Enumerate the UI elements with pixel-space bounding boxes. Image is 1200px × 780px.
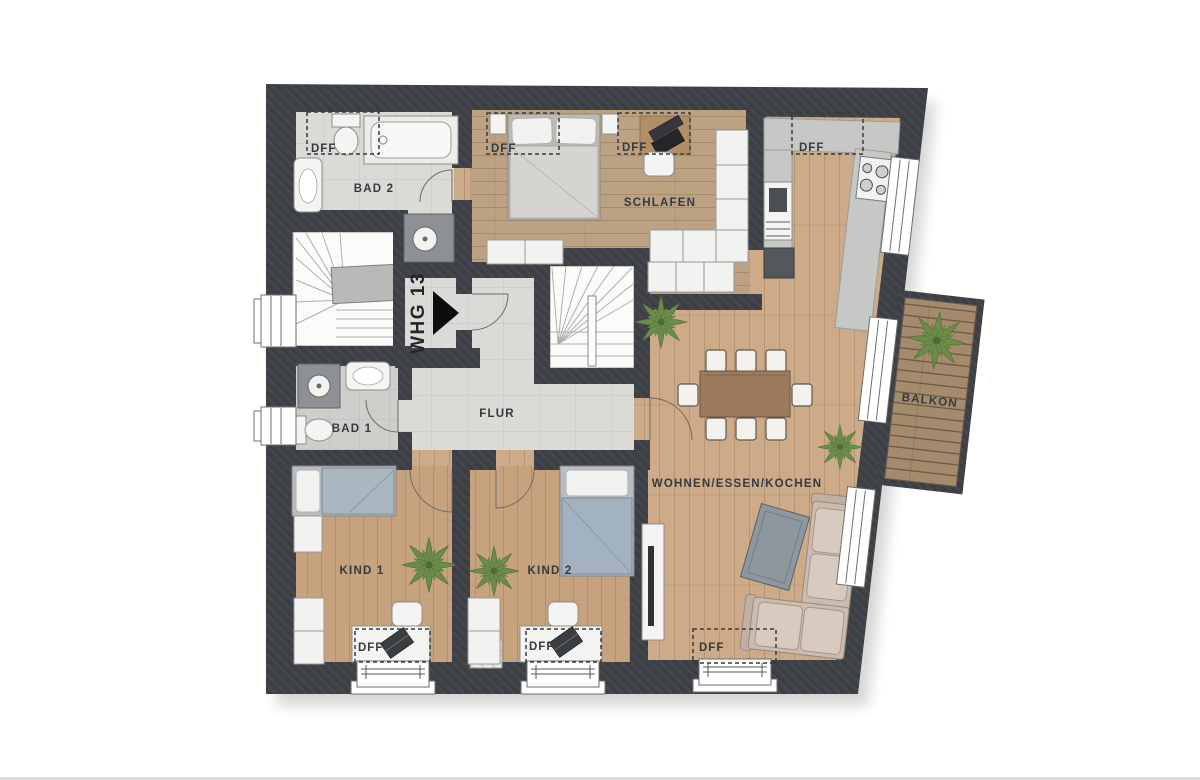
- chair: [678, 384, 698, 406]
- pillow: [556, 117, 597, 144]
- window: [693, 659, 777, 692]
- wardrobe: [468, 598, 500, 664]
- chair: [766, 418, 786, 440]
- pillow: [566, 470, 628, 496]
- room-label-kind1: KIND 1: [340, 565, 385, 577]
- chair: [644, 152, 674, 176]
- plant-icon: [818, 425, 862, 469]
- skylight-label: DFF: [699, 642, 724, 654]
- skylight-label: DFF: [799, 142, 824, 154]
- flur-east-floor: [534, 384, 634, 450]
- wall-segment: [452, 200, 472, 264]
- chair: [736, 350, 756, 372]
- chair: [706, 418, 726, 440]
- floor-plan-canvas: BALKON: [0, 0, 1200, 780]
- building-staircase: [293, 232, 398, 346]
- chair: [706, 350, 726, 372]
- chair: [736, 418, 756, 440]
- wall-segment: [534, 368, 650, 384]
- wall-segment: [398, 366, 412, 400]
- skylight-label: DFF: [311, 143, 336, 155]
- window: [254, 407, 296, 445]
- apartment-stairs: [550, 252, 634, 368]
- blanket: [322, 468, 394, 514]
- wall-segment: [288, 210, 408, 232]
- room-label-wohnen: WOHNEN/ESSEN/KOCHEN: [652, 478, 822, 490]
- pillow: [512, 117, 553, 144]
- wall-segment: [393, 230, 405, 352]
- wall-segment: [634, 440, 650, 464]
- wall-segment: [746, 104, 766, 250]
- room-label-bad2: BAD 2: [354, 183, 395, 195]
- chair: [766, 350, 786, 372]
- pillow: [296, 470, 320, 512]
- stair-rail: [588, 296, 596, 366]
- chair: [548, 602, 578, 626]
- wall-segment: [452, 468, 470, 692]
- window: [351, 661, 435, 694]
- wall-segment: [268, 346, 412, 366]
- room-label-kind2: KIND 2: [528, 565, 573, 577]
- nightstand: [602, 114, 618, 134]
- toilet: [334, 127, 358, 155]
- wall-segment: [452, 450, 496, 470]
- dining-table: [700, 371, 790, 417]
- room-label-flur: FLUR: [479, 408, 514, 420]
- chair: [392, 602, 422, 626]
- skylight-label: DFF: [622, 142, 647, 154]
- stair-landing: [331, 264, 397, 303]
- windows-bottom: [351, 659, 777, 694]
- plant-icon: [469, 546, 518, 595]
- toilet: [305, 419, 333, 441]
- chair: [792, 384, 812, 406]
- unit-label: WHG 13: [408, 272, 429, 354]
- skylight-label: DFF: [358, 642, 383, 654]
- window: [254, 295, 296, 347]
- floor-plan: BALKON: [0, 0, 1200, 780]
- room-label-bad1: BAD 1: [332, 423, 373, 435]
- toilet-tank: [332, 114, 360, 127]
- room-label-schlafen: SCHLAFEN: [624, 197, 696, 209]
- plant-icon: [635, 296, 687, 348]
- wall-segment: [534, 248, 550, 384]
- kitchen-counter: [764, 118, 900, 154]
- plant-icon: [402, 538, 457, 593]
- wall-segment: [634, 294, 762, 310]
- window: [521, 661, 605, 694]
- skylight-label: DFF: [491, 143, 516, 155]
- kitchen-block: [764, 248, 794, 278]
- wall-segment: [634, 384, 650, 398]
- tv: [648, 546, 654, 626]
- skylight-label: DFF: [529, 641, 554, 653]
- nightstand: [490, 114, 506, 134]
